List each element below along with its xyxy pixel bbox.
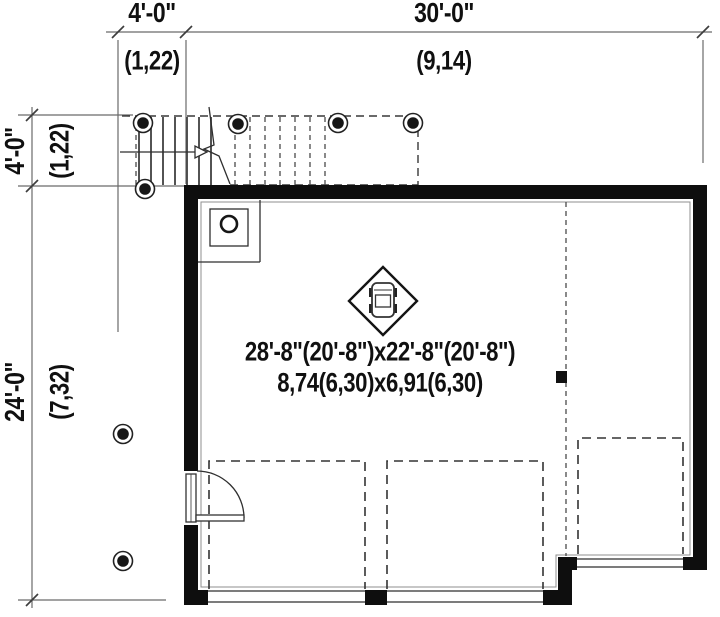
wall-marker: [556, 371, 567, 383]
car-symbol: [349, 267, 417, 335]
door-swing-arc: [197, 471, 244, 518]
dim-top-width-m: (9,14): [416, 46, 471, 77]
door-leaf: [196, 515, 244, 521]
break-line: [204, 107, 230, 184]
drain-icon: [221, 216, 237, 232]
dim-left-offset-ft: 4'-0": [0, 127, 31, 174]
car-icon: [369, 283, 397, 317]
floor-plan-canvas: 4'-0" (1,22) 30'-0" (9,14) 4'-0" (1,22) …: [0, 0, 720, 617]
room-size-imperial: 28'-8"(20'-8")x22'-8"(20'-8"): [245, 337, 515, 368]
dim-top-offset-ft: 4'-0": [128, 0, 175, 29]
floor-drain-fixture: [198, 200, 260, 262]
dim-left-height-ft: 24'-0": [0, 362, 31, 422]
man-door: [186, 471, 244, 522]
floor-plan-drawing: [0, 0, 720, 617]
deck-outline: [122, 116, 418, 185]
dim-left-height-m: (7,32): [45, 364, 76, 419]
dim-left-offset-m: (1,22): [45, 123, 76, 178]
dim-top-width-ft: 30'-0": [414, 0, 474, 29]
garage-door-openings: [182, 471, 683, 606]
dim-top-offset-m: (1,22): [124, 46, 179, 77]
room-size-metric: 8,74(6,30)x6,91(6,30): [277, 368, 483, 399]
